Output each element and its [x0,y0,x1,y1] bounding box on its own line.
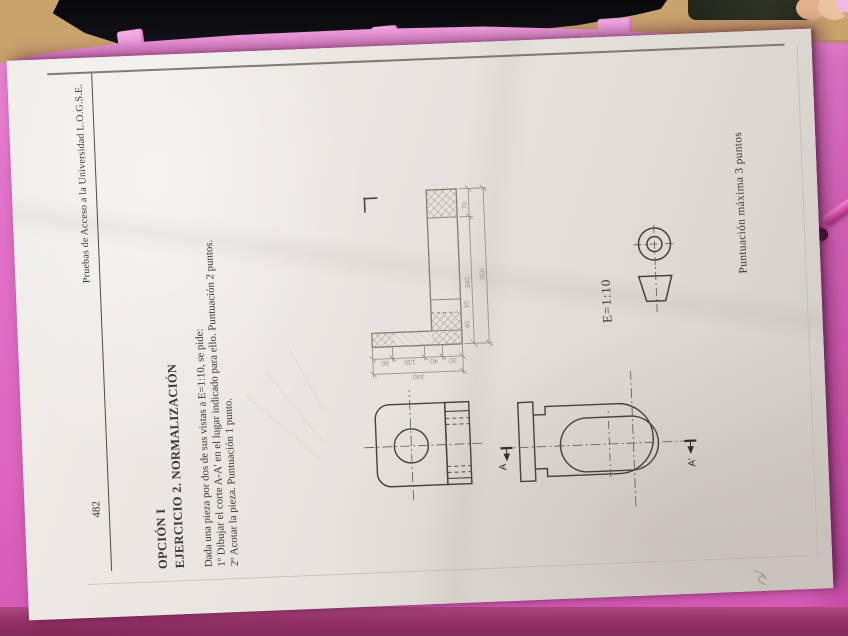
footer-note: Puntuación máxima 3 puntos [730,83,750,273]
svg-text:340: 340 [465,277,472,289]
page-frame-line [88,555,807,585]
section-sketch-pencil: 340 70 350 40 10 60 130 40 30 340 [352,180,500,385]
scale-label: E=1:10 [598,278,616,323]
svg-text:130: 130 [404,358,416,365]
pencil-scribble [750,567,773,590]
section-label-a-prime: A' [687,458,698,467]
exam-paper: 482 Pruebas de Acceso a la Universidad L… [7,29,834,621]
option-title: OPCIÓN I [154,508,171,569]
projection-symbol-icon [625,214,689,321]
page-number: 482 [90,501,103,518]
header-rule [91,73,112,571]
svg-text:60: 60 [381,359,389,366]
section-label-a: A [498,463,509,470]
photo-scene: 482 Pruebas de Acceso a la Universidad L… [0,0,848,636]
svg-text:40: 40 [430,357,438,364]
top-view-drawing [355,377,495,512]
svg-text:350: 350 [479,268,486,280]
svg-text:340: 340 [412,372,424,379]
corner-mark [363,197,378,213]
svg-text:30: 30 [449,356,457,363]
svg-text:10: 10 [464,301,471,309]
svg-text:70: 70 [462,202,469,210]
ghost-pencil-lines [234,342,329,466]
front-view-drawing: A A' [491,358,712,526]
svg-text:40: 40 [464,321,471,329]
